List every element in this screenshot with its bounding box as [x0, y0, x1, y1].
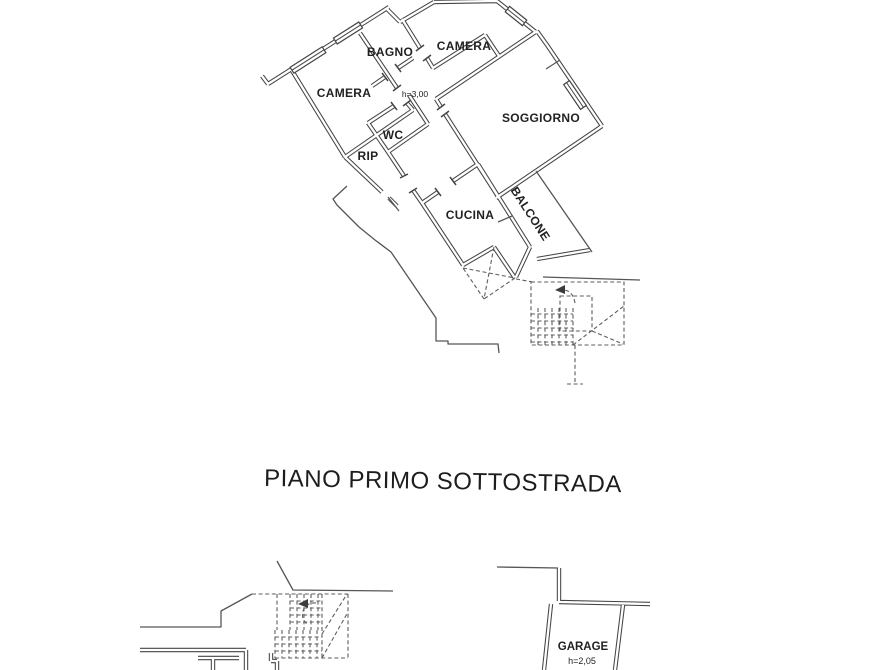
- room-label-wc: WC: [383, 128, 404, 142]
- retaining-wall-line: [543, 277, 640, 280]
- room-label-balcone: BALCONE: [508, 184, 553, 243]
- room-label-rip: RIP: [358, 149, 379, 163]
- stair-direction-arrow: [555, 285, 565, 294]
- basement-outline-left: [140, 594, 252, 627]
- basement-staircase-dashed: [252, 594, 348, 658]
- upper-floor-plan: CAMERA BAGNO CAMERA WC RIP SOGGIORNO CUC…: [262, 1, 640, 384]
- basement-walls: [140, 568, 650, 670]
- door-jambs: [382, 45, 456, 196]
- room-label-soggiorno: SOGGIORNO: [502, 111, 580, 125]
- garage-roof-line: [497, 567, 558, 568]
- room-label-camera-top: CAMERA: [437, 39, 491, 53]
- scanned-floorplan-page: CAMERA BAGNO CAMERA WC RIP SOGGIORNO CUC…: [0, 0, 893, 670]
- garage-height-note: h=2,05: [568, 656, 596, 666]
- room-label-camera-left: CAMERA: [317, 86, 371, 100]
- window-camera-left-2: [333, 22, 362, 44]
- external-staircase-dashed: [531, 282, 624, 384]
- room-label-bagno: BAGNO: [367, 45, 413, 59]
- plan-caption: PIANO PRIMO SOTTOSTRADA: [264, 465, 622, 498]
- garage-label: GARAGE: [558, 641, 609, 653]
- ceiling-height-note: h=3,00: [402, 89, 429, 99]
- room-label-cucina: CUCINA: [446, 208, 494, 222]
- window-camera-left-1: [290, 47, 326, 73]
- basement-outline-top: [277, 561, 393, 591]
- lower-floor-plan: GARAGE h=2,05: [140, 561, 650, 670]
- window-camera-top: [505, 6, 527, 25]
- basement-stair-arrow: [298, 599, 308, 608]
- light-shaft-dashed: [463, 247, 515, 299]
- floor-plan-canvas: CAMERA BAGNO CAMERA WC RIP SOGGIORNO CUC…: [0, 0, 893, 670]
